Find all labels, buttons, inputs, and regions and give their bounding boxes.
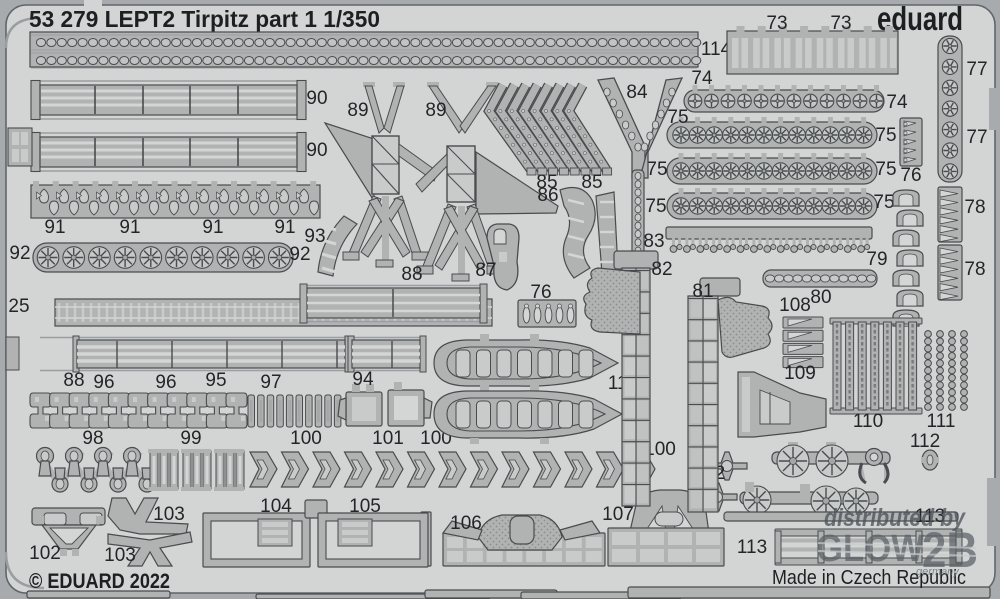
svg-text:112: 112	[910, 431, 940, 452]
svg-text:25: 25	[8, 296, 29, 317]
svg-text:89: 89	[347, 100, 368, 121]
svg-text:108: 108	[779, 295, 811, 316]
svg-text:73: 73	[830, 13, 851, 34]
svg-text:73: 73	[766, 13, 787, 34]
svg-text:99: 99	[180, 428, 201, 449]
svg-text:© EDUARD 2022: © EDUARD 2022	[29, 570, 170, 593]
svg-text:77: 77	[966, 127, 987, 148]
svg-text:78: 78	[964, 197, 985, 218]
svg-text:87: 87	[475, 260, 496, 281]
svg-text:110: 110	[853, 411, 883, 432]
svg-text:90: 90	[306, 140, 327, 161]
svg-text:101: 101	[372, 428, 404, 449]
svg-text:GLOW: GLOW	[816, 528, 924, 570]
svg-text:83: 83	[643, 231, 664, 252]
svg-text:76: 76	[900, 165, 921, 186]
svg-text:93: 93	[304, 226, 325, 247]
svg-text:94: 94	[352, 369, 374, 390]
svg-text:96: 96	[93, 372, 114, 393]
svg-text:82: 82	[651, 259, 672, 280]
svg-text:105: 105	[349, 496, 381, 517]
svg-text:74: 74	[886, 92, 908, 113]
svg-text:106: 106	[450, 513, 482, 534]
svg-text:92: 92	[9, 243, 30, 264]
svg-text:78: 78	[964, 259, 985, 280]
svg-text:75: 75	[875, 125, 896, 146]
svg-text:86: 86	[537, 185, 558, 206]
svg-text:96: 96	[155, 372, 176, 393]
svg-text:80: 80	[810, 287, 831, 308]
svg-text:103: 103	[104, 545, 136, 566]
svg-text:95: 95	[205, 370, 226, 391]
svg-text:75: 75	[667, 107, 688, 128]
svg-text:79: 79	[866, 249, 887, 270]
svg-text:91: 91	[202, 217, 223, 238]
svg-text:90: 90	[306, 88, 327, 109]
svg-text:113: 113	[737, 537, 767, 558]
svg-text:109: 109	[784, 363, 816, 384]
svg-text:75: 75	[646, 159, 667, 180]
svg-text:91: 91	[44, 217, 65, 238]
svg-text:76: 76	[530, 282, 551, 303]
svg-text:92: 92	[289, 244, 310, 265]
svg-text:74: 74	[691, 68, 713, 89]
svg-text:100: 100	[290, 428, 322, 449]
svg-text:111: 111	[927, 411, 956, 432]
svg-text:97: 97	[260, 372, 281, 393]
svg-text:102: 102	[29, 543, 61, 564]
svg-text:75: 75	[875, 159, 896, 180]
svg-text:75: 75	[873, 192, 894, 213]
svg-text:107: 107	[602, 504, 634, 525]
svg-text:53 279 LEPT2 Tirpitz part 1: 53 279 LEPT2 Tirpitz part 1 1/350	[29, 6, 380, 32]
svg-text:98: 98	[82, 428, 103, 449]
svg-text:103: 103	[153, 504, 185, 525]
svg-text:77: 77	[966, 59, 987, 80]
svg-text:75: 75	[645, 196, 666, 217]
svg-text:84: 84	[626, 82, 648, 103]
svg-text:81: 81	[692, 281, 713, 302]
svg-text:91: 91	[119, 217, 140, 238]
svg-text:germany: germany	[916, 566, 960, 578]
svg-text:88: 88	[63, 370, 84, 391]
svg-text:85: 85	[581, 172, 602, 193]
svg-text:104: 104	[260, 496, 292, 517]
svg-text:88: 88	[401, 264, 422, 285]
svg-text:91: 91	[274, 217, 295, 238]
svg-text:89: 89	[425, 100, 446, 121]
